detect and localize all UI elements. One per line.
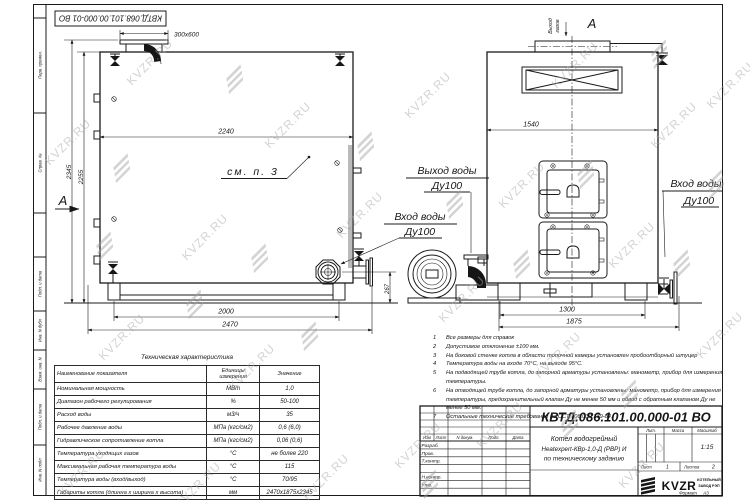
dim-height-total: 2345	[66, 164, 73, 180]
note-number: 1	[433, 334, 446, 343]
water-in-right-dn-label: Ду100	[683, 195, 714, 207]
org-name-line1: КОТЕЛЬНЫЙ	[697, 478, 721, 482]
dim-2255: 2255	[77, 52, 100, 303]
frame-label-inv-podl: Инв. N подл	[38, 458, 43, 482]
door-lower	[539, 222, 607, 278]
tb-lit-label: Лит.	[645, 428, 656, 433]
tb-col-list: Лист	[435, 435, 447, 440]
section-a-marker: А	[55, 193, 79, 209]
boiler-side-view: 300x600 2240 см. п. 3 2345 2255 2000	[55, 30, 398, 334]
note-item: 6На отводящей трубе котла, до запорной а…	[433, 387, 726, 413]
cell-value: 50-100	[260, 396, 320, 409]
doc-title-line1: Котел водогрейный	[551, 435, 618, 443]
tb-row-prov: Пров.	[422, 451, 435, 457]
cell-name: Габариты котла (длинна х ширина х высота…	[55, 487, 207, 500]
frame-label-podp-data-1: Подп. и дата	[38, 270, 43, 297]
see-note-callout: см. п. 3	[221, 156, 310, 179]
dim-flange-height: 267	[385, 283, 391, 295]
water-out-dn-label: Ду100	[431, 180, 462, 192]
tb-row-tkontr: Т.контр.	[422, 459, 441, 465]
frame-label-podp-data-2: Подп. и дата	[38, 403, 43, 430]
gas-outlet-label: Выход газов	[548, 18, 566, 36]
table-row: Максимальная рабочая температура воды°С1…	[55, 461, 320, 474]
note-text: На боковой стенке котла в области топочн…	[446, 352, 726, 361]
cell-name: Рабочее давление воды	[55, 422, 207, 435]
top-stamp-number: КВТД.068.101.00.000-01 ВО	[59, 14, 162, 23]
boiler-front-view: Выход газов А 1540	[446, 16, 722, 331]
cell-units: МВт	[207, 383, 260, 396]
safety-valve-right	[335, 54, 345, 66]
water-inlet-flange-side	[316, 260, 340, 284]
tech-th-units: Единицы измерения	[207, 366, 260, 383]
cell-units: °С	[207, 474, 260, 487]
water-in-right-label: Вход воды	[671, 178, 722, 190]
doc-title-line2: Heatexpert-КВр-1,0-Д (РВР) И	[542, 446, 628, 453]
dim-width-top: 2240	[217, 129, 234, 136]
note-item: 2Допустимое отклонение ±100 мм.	[433, 343, 726, 352]
note-number: 2	[433, 343, 446, 352]
table-row: Диапазон рабочего регулирования%50-100	[55, 396, 320, 409]
tech-table-header-row: Наименование показателя Единицы измерени…	[55, 366, 320, 383]
dim-1540: 1540	[487, 122, 658, 131]
note-text: Температура воды на входе 70°С, на выход…	[446, 360, 726, 369]
tb-row-nkontr: Н.контр.	[422, 475, 442, 481]
dim-chimney: 300x600	[120, 30, 199, 44]
dim-1300: 1300	[500, 301, 645, 319]
water-in-mid-label: Вход воды	[395, 211, 446, 223]
tb-row-utv: Утв.	[422, 482, 433, 488]
note-number: 6	[433, 387, 446, 413]
cell-value: 70/95	[260, 474, 320, 487]
format-label: Формат	[679, 491, 697, 496]
cell-units: МПа (кгс/см2)	[207, 435, 260, 448]
dim-base-front: 1300	[559, 307, 575, 314]
tech-table-title: Техническая характеристика	[54, 354, 320, 361]
water-out-label: Выход воды	[417, 165, 476, 177]
tb-col-izm: Изм	[423, 435, 431, 440]
frame-label-vzam-inv: Взам. инв. N	[38, 356, 43, 381]
water-in-right-label-group: Вход воды Ду100	[662, 178, 722, 257]
table-row: Гидравлическое сопротивление котлаМПа (к…	[55, 435, 320, 448]
note-number: 5	[433, 369, 446, 387]
dim-width-front: 1540	[523, 122, 539, 129]
tb-sheets-value: 2	[711, 465, 715, 471]
door-upper	[539, 161, 607, 218]
tb-scale-value: 1:15	[701, 444, 714, 451]
table-row: Номинальная мощностьМВт1,0	[55, 383, 320, 396]
note-text: На отводящей трубе котла, до запорной ар…	[446, 387, 726, 413]
doc-title-line3: по техническому заданию	[544, 455, 624, 463]
tb-scale-label: Масштаб	[697, 428, 717, 433]
dim-2345: 2345	[64, 40, 118, 303]
tb-sheet-label: Лист	[640, 465, 652, 470]
table-row: Рабочее давление водыМПа (кгс/см2)0,6 (6…	[55, 422, 320, 435]
cell-units: °С	[207, 461, 260, 474]
dim-1875: 1875	[499, 296, 679, 331]
note-number: 7	[433, 413, 446, 422]
fitting-marks	[112, 97, 343, 233]
top-pipe-valve	[610, 44, 668, 66]
cell-name: Расход воды	[55, 409, 207, 422]
cell-units: м3/ч	[207, 409, 260, 422]
cell-units: мм	[207, 487, 260, 500]
cell-name: Гидравлическое сопротивление котла	[55, 435, 207, 448]
cell-name: Максимальная рабочая температура воды	[55, 461, 207, 474]
dim-base-side: 2000	[217, 309, 234, 316]
door-lower-lock-icon	[567, 246, 579, 258]
tb-col-data: Дата	[511, 435, 524, 440]
chimney	[120, 40, 168, 64]
dim-2000: 2000	[114, 301, 339, 321]
dim-height-body: 2255	[78, 169, 85, 185]
table-row: Температура уходящих газов°Сне более 220	[55, 448, 320, 461]
tb-col-ndokum: N докум.	[457, 435, 474, 440]
gas-outlet-word1: Выход	[548, 18, 554, 34]
tb-sheets-label: Листов	[683, 465, 700, 470]
cell-name: Номинальная мощность	[55, 383, 207, 396]
cell-name: Температура уходящих газов	[55, 448, 207, 461]
tb-col-podp: Подп.	[488, 435, 499, 440]
note-item: 4Температура воды на входе 70°С, на выхо…	[433, 360, 726, 369]
note-number: 4	[433, 360, 446, 369]
cell-units: МПа (кгс/см2)	[207, 422, 260, 435]
cell-value: не более 220	[260, 448, 320, 461]
note-item: 5На подводящей трубе котла, до запорной …	[433, 369, 726, 387]
dim-overall-side: 2470	[221, 322, 238, 329]
tech-th-value: Значение	[260, 366, 320, 383]
dim-2240: 2240	[100, 129, 353, 138]
cell-units: %	[207, 396, 260, 409]
cell-value: 0,06 (0,6)	[260, 435, 320, 448]
front-right-valve	[658, 272, 677, 304]
format-value: А3	[702, 491, 709, 496]
frame-label-sprav-no: Справ. №	[38, 153, 43, 172]
drawing-sheet: Перв. примен. Справ. № Подп. и дата Инв.…	[0, 0, 750, 500]
cell-name: Температура воды (вход/выход)	[55, 474, 207, 487]
note-item: 1Все размеры для справок	[433, 334, 726, 343]
frame-label-inv-dubl: Инв. N дубл	[38, 318, 43, 342]
note-text: Остальные технические требования по ОСТ …	[446, 413, 726, 422]
door-upper-lock-icon	[567, 185, 579, 197]
view-a-letter: А	[587, 16, 597, 31]
table-row: Расход водым3/ч35	[55, 409, 320, 422]
table-row: Габариты котла (длинна х ширина х высота…	[55, 487, 320, 500]
cell-units: °С	[207, 448, 260, 461]
door-upper-handle	[540, 190, 560, 195]
note-item: 3На боковой стенке котла в области топоч…	[433, 352, 726, 361]
section-a-letter: А	[58, 193, 68, 208]
cell-name: Диапазон рабочего регулирования	[55, 396, 207, 409]
gas-outlet-word2: газов	[555, 19, 561, 33]
tb-mass-label: Масса	[672, 428, 685, 433]
water-in-mid-dn-label: Ду100	[404, 226, 435, 238]
cell-value: 35	[260, 409, 320, 422]
frame-label-perv-primen: Перв. примен.	[38, 51, 43, 79]
table-row: Температура воды (вход/выход)°С70/95	[55, 474, 320, 487]
tb-sheet-value: 1	[666, 465, 669, 471]
note-text: Все размеры для справок	[446, 334, 726, 343]
notes-list: 1Все размеры для справок 2Допустимое отк…	[433, 334, 726, 422]
tb-row-razrab: Разраб.	[422, 443, 439, 449]
dim-overall-front: 1875	[566, 319, 582, 326]
tech-table: Наименование показателя Единицы измерени…	[54, 365, 320, 500]
door-lower-handle	[540, 250, 560, 255]
skid-frame	[64, 283, 398, 303]
note-number: 3	[433, 352, 446, 361]
note-text: Допустимое отклонение ±100 мм.	[446, 343, 726, 352]
cell-value: 1,0	[260, 383, 320, 396]
note-item: 7Остальные технические требования по ОСТ…	[433, 413, 726, 422]
org-name-line2: ЗАВОД РЭП	[698, 484, 720, 488]
drain-valve	[108, 262, 118, 283]
tech-th-name: Наименование показателя	[55, 366, 207, 383]
see-note-text: см. п. 3	[227, 166, 279, 178]
blower-fan	[408, 250, 498, 303]
cell-value: 115	[260, 461, 320, 474]
cell-value: 2470х1875х2345	[260, 487, 320, 500]
note-text: На подводящей трубе котла, до запорной а…	[446, 369, 726, 387]
safety-valve-left	[110, 54, 120, 66]
top-stamp: КВТД.068.101.00.000-01 ВО	[55, 11, 166, 26]
dim-chimney-size: 300x600	[174, 32, 199, 39]
cell-value: 0,6 (6,0)	[260, 422, 320, 435]
